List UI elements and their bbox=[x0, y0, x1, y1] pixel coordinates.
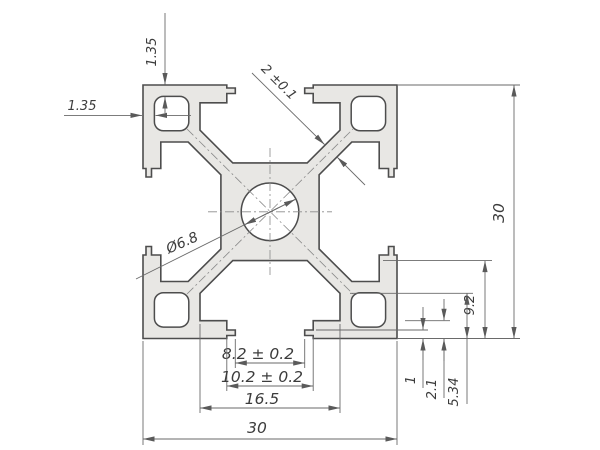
dim-slot-undercut-label: 10.2 ± 0.2 bbox=[221, 368, 303, 386]
dim-slot-side-depth-label: 5.34 bbox=[447, 378, 462, 407]
dimension-overall-height: 30 bbox=[397, 85, 520, 339]
corner-cavity-bottom-right bbox=[351, 293, 385, 327]
dim-lip-depth-label: 2.1 bbox=[425, 379, 440, 400]
dim-wall-top-label: 1.35 bbox=[145, 38, 160, 67]
corner-cavity-top-left bbox=[154, 96, 188, 130]
dim-slot-inner-width-label: 16.5 bbox=[245, 390, 280, 408]
dim-overall-height-label: 30 bbox=[490, 203, 508, 223]
dim-slot-opening-label: 8.2 ± 0.2 bbox=[222, 345, 294, 363]
corner-cavity-top-right bbox=[351, 96, 385, 130]
corner-cavity-bottom-left bbox=[154, 293, 188, 327]
dim-overall-width-label: 30 bbox=[247, 419, 267, 437]
dim-wall-left-label: 1.35 bbox=[68, 99, 97, 114]
dim-web-thickness-label: 2 ±0.1 bbox=[258, 62, 300, 104]
dimension-slot-depth: 9.2 bbox=[383, 261, 492, 339]
dimension-slot-opening: 8.2 ± 0.2 bbox=[222, 339, 305, 368]
dim-lip-step-label: 1 bbox=[404, 376, 419, 384]
dim-slot-depth-label: 9.2 bbox=[463, 295, 478, 316]
dim-center-hole-label: Ø6.8 bbox=[163, 229, 201, 258]
profile-drawing-canvas: 1.35 1.35 2 ±0.1 Ø6.8 30 9.2 5.34 bbox=[0, 0, 600, 450]
drawing-page: 1.35 1.35 2 ±0.1 Ø6.8 30 9.2 5.34 bbox=[0, 0, 600, 450]
